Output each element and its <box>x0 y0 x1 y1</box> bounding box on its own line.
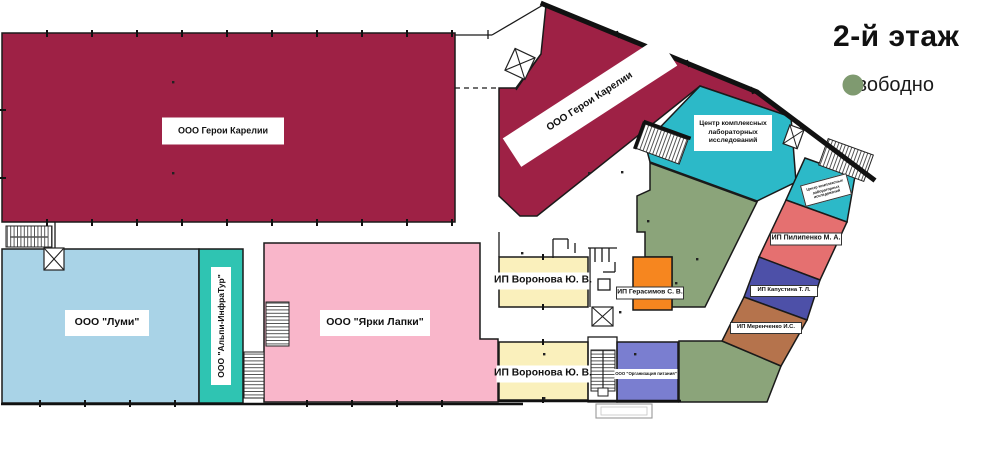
staircase-top-left <box>6 226 52 247</box>
floor-plan-page: ООО Герои Карелии ООО Герои Карелии Цент… <box>0 0 1000 471</box>
room-lab-center-label[interactable]: Центр комплексных лабораторных исследова… <box>694 115 772 151</box>
staircase-center <box>591 350 615 396</box>
room-alpi-label[interactable]: ООО "Альпи-ИнфраТур" <box>211 267 231 385</box>
room-pilipenko-label[interactable]: ИП Пилипенко М. А. <box>770 233 842 246</box>
floor-plan-canvas <box>0 0 1000 471</box>
room-kapustina-label[interactable]: ИП Капустина Т. Л. <box>750 285 818 297</box>
room-yarki-label[interactable]: ООО "Ярки Лапки" <box>320 310 430 336</box>
floor-title-number: 2 <box>833 20 850 53</box>
elevator-center <box>592 307 613 326</box>
floor-title-suffix: -й этаж <box>850 20 959 53</box>
free-status-dot <box>842 74 864 96</box>
elevator-left <box>44 248 64 270</box>
room-voronova-top-label[interactable]: ИП Воронова Ю. В. <box>497 273 590 290</box>
room-gerasimov-label[interactable]: ИП Герасимов С. В. <box>616 287 684 300</box>
room-merenchenko-label[interactable]: ИП Меренченко И.С. <box>730 322 802 334</box>
room-geroi-main-label[interactable]: ООО Герои Карелии <box>162 118 284 145</box>
legend-free-item[interactable]: Свободно <box>842 74 934 97</box>
room-voronova-bottom-label[interactable]: ИП Воронова Ю. В. <box>497 366 590 383</box>
room-pitanie-label[interactable]: ООО "Организация питания" <box>615 369 678 379</box>
room-gerasimov-shape[interactable] <box>633 257 672 310</box>
staircase-pink-left <box>266 302 289 346</box>
floor-title: 2-й этаж <box>833 20 959 54</box>
room-lumi-label[interactable]: ООО "Луми" <box>65 310 149 336</box>
staircase-corridor <box>244 352 264 398</box>
